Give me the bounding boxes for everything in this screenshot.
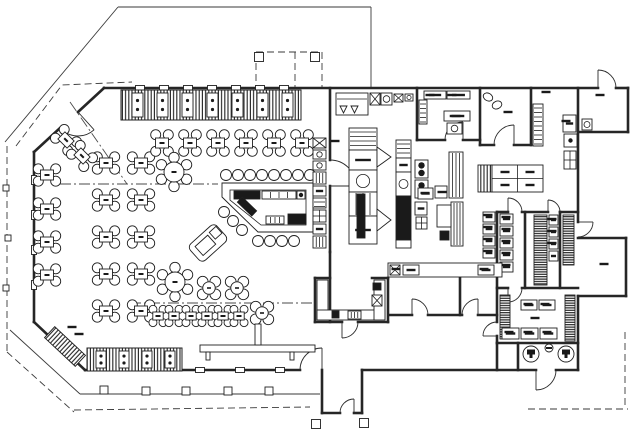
dining-table — [198, 305, 216, 326]
label-mark — [566, 122, 573, 124]
equipment — [372, 295, 382, 306]
booth-table — [165, 351, 175, 368]
table-setting-dot — [136, 108, 139, 111]
drain-dot — [299, 193, 303, 197]
table-label — [104, 273, 109, 275]
deck-edge-line — [16, 82, 132, 146]
equipment-outline — [396, 196, 411, 240]
dining-table — [263, 130, 286, 157]
office-chair — [491, 99, 503, 110]
label-text — [502, 240, 511, 242]
sink-basin — [332, 311, 339, 318]
label-mark — [316, 228, 323, 230]
table-setting-dot — [236, 108, 239, 111]
table-setting-dot — [99, 361, 102, 364]
mop-sink — [394, 94, 403, 102]
bar-equipment — [288, 214, 306, 224]
door-arc — [340, 399, 354, 413]
label-text — [331, 140, 340, 142]
label-text — [502, 216, 511, 218]
dining-table — [92, 300, 119, 322]
door-swing — [508, 198, 522, 212]
label-text — [548, 230, 557, 232]
prep-table — [449, 152, 463, 198]
table-label — [216, 142, 221, 144]
table-label — [139, 199, 144, 201]
dining-table — [127, 226, 154, 248]
rail-counter — [200, 345, 315, 352]
label-text — [541, 303, 550, 305]
service-station — [313, 161, 326, 170]
table-setting-dot — [161, 99, 164, 102]
cookline-equipment — [349, 170, 377, 192]
deck-post — [3, 285, 9, 291]
dining-table — [291, 130, 314, 157]
table-setting-dot — [286, 99, 289, 102]
table-setting-dot — [161, 108, 164, 111]
dining-table — [179, 130, 202, 157]
table-label — [45, 208, 50, 210]
door-arc — [578, 222, 593, 237]
mop-sink — [523, 346, 539, 362]
rail-leg — [290, 352, 294, 360]
sink — [381, 93, 392, 105]
table-setting-dot — [186, 108, 189, 111]
bar-stool — [277, 236, 288, 247]
door-swing — [342, 322, 358, 338]
label-mark — [551, 255, 556, 257]
bar-stool — [269, 170, 280, 181]
hand-sink — [405, 94, 413, 101]
dining-table — [33, 198, 60, 220]
table-label — [272, 142, 277, 144]
bar-stool — [219, 207, 230, 218]
table-setting-dot — [261, 99, 264, 102]
wait-station — [45, 327, 86, 367]
service-station — [313, 172, 326, 184]
dining-table — [127, 263, 154, 285]
table-setting-dot — [211, 99, 214, 102]
drain — [530, 355, 533, 359]
equipment — [563, 115, 576, 132]
service-station — [313, 224, 326, 234]
table-setting-dot — [136, 99, 139, 102]
label-text — [501, 184, 510, 186]
table-label — [205, 315, 210, 317]
equipment-outline — [313, 150, 326, 159]
equipment-outline — [357, 194, 365, 238]
label-text — [484, 250, 493, 252]
table-label — [156, 315, 161, 317]
equipment-outline — [447, 123, 462, 134]
equipment-outline — [437, 205, 451, 227]
label-text — [526, 184, 535, 186]
walkin-shelving — [534, 215, 547, 285]
deck-post — [3, 185, 9, 191]
label-text — [548, 242, 557, 244]
door-swing — [598, 70, 616, 88]
drain-dot — [568, 138, 572, 142]
walkin-shelf — [500, 226, 513, 236]
rail-leg — [206, 352, 210, 360]
equipment-outline — [396, 172, 411, 196]
cafe-table — [250, 301, 273, 324]
booth-table — [96, 351, 106, 368]
door-arc — [412, 299, 428, 315]
cookline-equipment — [396, 158, 411, 172]
label-text — [504, 111, 513, 113]
basin — [562, 350, 570, 355]
cookline-equipment — [396, 172, 411, 196]
counter-equipment — [403, 265, 419, 275]
door-swing — [494, 125, 514, 145]
label-text — [68, 326, 77, 328]
table-label — [237, 315, 242, 317]
round-table — [156, 152, 192, 191]
booth-table — [119, 351, 129, 368]
equipment — [564, 151, 576, 169]
label-text — [426, 94, 435, 96]
deck-post — [255, 53, 264, 62]
service-station — [313, 236, 326, 248]
service-station — [313, 198, 326, 208]
hood-symbol — [377, 147, 391, 167]
door-swing — [340, 399, 354, 413]
rail-post — [255, 324, 261, 345]
door-swing — [412, 299, 428, 315]
table-setting-dot — [168, 361, 171, 364]
drain-slot — [546, 347, 552, 349]
label-text — [600, 263, 609, 265]
label-mark — [316, 190, 323, 192]
equipment-outline — [234, 191, 260, 199]
equipment-outline — [332, 311, 339, 318]
deck-post — [224, 387, 232, 395]
ice-machine — [336, 93, 368, 115]
bar-stool — [253, 236, 264, 247]
hood-symbol — [377, 209, 391, 231]
fryer — [415, 160, 428, 178]
door-arc — [536, 370, 556, 390]
bar-sink — [297, 191, 305, 199]
walkin-shelf — [549, 251, 558, 261]
bar-stool — [257, 170, 268, 181]
equipment-outline — [478, 165, 492, 192]
mop-sink — [558, 346, 574, 362]
backbar-equipment — [234, 191, 260, 199]
floor-plan — [0, 0, 630, 445]
equipment — [483, 212, 495, 222]
booth-table — [282, 93, 293, 117]
walkin-shelf — [500, 214, 513, 224]
label-text — [526, 171, 535, 173]
deck-edge-line — [10, 330, 80, 394]
drain — [565, 355, 568, 359]
label-text — [596, 94, 605, 96]
floor-plan-drawing — [0, 0, 630, 445]
bar-stool — [221, 170, 232, 181]
label-text — [524, 331, 533, 333]
office-chair — [482, 91, 494, 103]
dining-table — [33, 164, 60, 186]
door-swing — [536, 370, 556, 390]
cookline-equipment — [396, 240, 411, 248]
door-arc — [494, 125, 514, 145]
prep-table — [451, 202, 463, 246]
table-setting-dot — [286, 108, 289, 111]
label-text — [484, 226, 493, 228]
table-label — [104, 162, 109, 164]
table-label — [104, 236, 109, 238]
bar-equipment — [266, 216, 284, 224]
table-label — [300, 142, 305, 144]
table-label — [45, 274, 50, 276]
table-setting-dot — [211, 108, 214, 111]
door-arc — [598, 70, 616, 88]
table-label — [235, 287, 239, 289]
equipment-outline — [349, 170, 377, 192]
booth-table — [182, 93, 193, 117]
cookline-equipment — [349, 150, 377, 170]
equipment — [415, 202, 427, 215]
service-station — [313, 186, 326, 196]
equipment-outline — [396, 240, 411, 248]
basin — [527, 350, 535, 355]
table-setting-dot — [168, 354, 171, 357]
table-setting-dot — [145, 361, 148, 364]
label-text — [548, 218, 557, 220]
label-mark — [399, 164, 407, 166]
door-swing — [462, 299, 478, 315]
dishwasher — [348, 311, 361, 319]
label-text — [452, 115, 461, 117]
equipment-outline — [288, 214, 306, 224]
table-label — [104, 310, 109, 312]
table-setting-dot — [122, 361, 125, 364]
fry-vat — [418, 170, 424, 176]
booth-table — [207, 93, 218, 117]
fry-vat — [418, 162, 424, 168]
table-setting-dot — [122, 354, 125, 357]
booth-row — [121, 90, 301, 120]
equipment-outline — [565, 295, 575, 341]
table-setting-dot — [145, 354, 148, 357]
walkin-shelf — [521, 328, 538, 339]
equipment-outline — [534, 215, 547, 285]
bar-stool — [289, 236, 300, 247]
door-swing — [483, 322, 497, 336]
table-label — [45, 174, 50, 176]
table-label — [173, 281, 178, 283]
deck-post — [360, 419, 369, 428]
table-label — [139, 273, 144, 275]
dining-table — [207, 130, 230, 157]
label-text — [524, 303, 533, 305]
deck-edge-line — [5, 7, 118, 142]
equipment — [483, 224, 495, 234]
equipment-outline — [290, 352, 294, 360]
door-arc — [483, 322, 497, 336]
deck-post — [265, 387, 273, 395]
walkin-shelf — [502, 328, 519, 339]
door-swing — [548, 200, 560, 212]
equipment-outline — [373, 283, 381, 290]
equipment-outline — [349, 128, 377, 150]
dining-table — [151, 130, 174, 157]
piano — [187, 223, 228, 263]
chair — [169, 181, 179, 191]
equipment-outline — [582, 119, 592, 130]
walkin-shelf — [540, 328, 557, 339]
dining-table — [33, 264, 60, 286]
dining-table — [127, 189, 154, 211]
table-label — [45, 241, 50, 243]
label-text — [501, 171, 510, 173]
hand-sink — [370, 93, 380, 105]
shelving-unit — [533, 104, 543, 146]
service-station — [313, 210, 326, 222]
table-label — [104, 199, 109, 201]
booth-table — [157, 93, 168, 117]
booth-table — [142, 351, 152, 368]
walkin-shelf — [500, 238, 513, 248]
booth-table — [132, 93, 143, 117]
bar-stool — [237, 225, 248, 236]
label-text — [502, 264, 511, 266]
table-label — [207, 287, 211, 289]
dining-table — [230, 305, 248, 326]
dining-table — [182, 305, 200, 326]
window-mullion — [236, 368, 245, 373]
table-label — [172, 315, 177, 317]
deck-post — [100, 386, 108, 394]
door-swing — [578, 222, 593, 237]
equipment — [440, 231, 449, 240]
dining-table — [33, 231, 60, 253]
water-heater — [564, 134, 577, 147]
table-label — [139, 236, 144, 238]
label-text — [480, 268, 489, 270]
bar-stool — [265, 236, 276, 247]
window-mullion — [196, 368, 205, 373]
equipment — [483, 236, 495, 246]
equipment-outline — [206, 352, 210, 360]
table-label — [221, 315, 226, 317]
equipment-outline — [255, 324, 261, 345]
cookline-equipment — [349, 128, 377, 150]
chair — [169, 152, 179, 162]
equipment — [483, 248, 495, 258]
booth-row — [87, 348, 182, 371]
walkin-shelving — [563, 215, 574, 265]
deck-edge-line — [7, 352, 74, 412]
deck-post — [311, 53, 320, 62]
backbar-cooler — [262, 191, 296, 199]
walkin-shelving — [565, 295, 575, 341]
label-text — [484, 238, 493, 240]
bar-stool — [233, 170, 244, 181]
label-text — [502, 228, 511, 230]
window-mullion — [276, 368, 285, 373]
round-table — [157, 262, 193, 301]
equipment-outline — [440, 231, 449, 240]
wall — [78, 88, 104, 112]
work-table — [492, 165, 543, 192]
dining-table — [92, 189, 119, 211]
door-leaf — [78, 112, 94, 130]
label-text — [543, 331, 552, 333]
dining-table — [214, 305, 232, 326]
booth-table — [232, 93, 243, 117]
equipment-outline — [200, 345, 315, 352]
table-label — [139, 310, 144, 312]
bar-stool — [281, 170, 292, 181]
deck-edge-line — [74, 407, 310, 410]
deck-post — [5, 235, 11, 241]
deck-post — [182, 387, 190, 395]
dining-table — [165, 305, 183, 326]
table-label — [244, 142, 249, 144]
label-text — [448, 94, 457, 96]
equipment-outline — [336, 93, 368, 115]
table-setting-dot — [236, 99, 239, 102]
door-arc — [548, 200, 560, 212]
label-text — [438, 191, 447, 193]
bar-stool — [245, 170, 256, 181]
bar-stool — [293, 170, 304, 181]
door-arc — [508, 198, 522, 212]
cart — [447, 123, 462, 134]
dining-table — [127, 152, 154, 174]
table-setting-dot — [99, 354, 102, 357]
prep-table — [437, 205, 451, 227]
deck-post — [142, 387, 150, 395]
dish-rack — [478, 165, 492, 192]
walkin-shelf — [500, 250, 513, 260]
label-text — [392, 268, 401, 270]
cookline-equipment — [396, 140, 411, 158]
table-setting-dot — [261, 108, 264, 111]
equipment — [416, 217, 427, 229]
table-label — [172, 171, 177, 173]
dining-table — [92, 263, 119, 285]
label-text — [484, 214, 493, 216]
service-station — [313, 150, 326, 159]
table-label — [260, 312, 264, 314]
equipment-outline — [563, 215, 574, 265]
chair — [170, 262, 180, 272]
equipment-outline — [45, 327, 86, 367]
label-text — [531, 317, 540, 319]
label-mark — [407, 269, 416, 271]
equipment-outline — [381, 93, 392, 105]
service-station — [313, 138, 326, 148]
table-setting-dot — [186, 99, 189, 102]
booth-table — [257, 93, 268, 117]
broiler — [396, 196, 411, 240]
dining-table — [235, 130, 258, 157]
label-text — [542, 91, 551, 93]
label-text — [75, 333, 84, 335]
table-label — [160, 142, 165, 144]
label-text — [505, 331, 514, 333]
chair — [170, 291, 180, 301]
dining-table — [92, 226, 119, 248]
range — [357, 194, 365, 238]
storage-shelving — [419, 100, 427, 124]
door-arc — [342, 322, 358, 338]
label-text — [562, 120, 571, 122]
